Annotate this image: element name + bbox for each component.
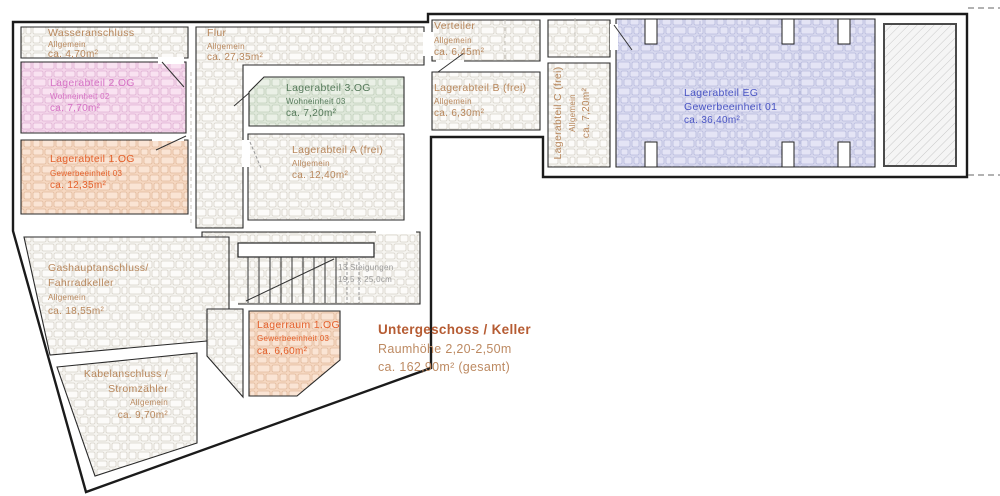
room-name: Flur <box>207 27 226 39</box>
room-name2: Stromzähler <box>108 383 168 395</box>
room-lagerabteil-1og: Lagerabteil 1.OG Gewerbeeinheit 03 ca. 1… <box>21 134 188 214</box>
room-area: ca. 7,20m² <box>581 88 592 139</box>
room-unit: Allgemein <box>48 293 86 302</box>
shaft-hatched-area <box>884 24 956 166</box>
room-name: Gashauptanschluss/ <box>48 262 149 274</box>
room-unit: Allgemein <box>48 40 86 49</box>
room-name: Lagerabteil 1.OG <box>50 153 135 165</box>
room-unit: Allgemein <box>434 36 472 45</box>
title-block: Untergeschoss / Keller Raumhöhe 2,20-2,5… <box>378 322 531 374</box>
room-unit: Allgemein <box>207 42 245 51</box>
stair-hall: 13 Steigungen 19,5 x 25,0cm <box>202 227 420 310</box>
floor-plan-drawing: Wasseranschluss Allgemein ca. 4,70m² Lag… <box>0 0 1000 496</box>
room-area: ca. 6,60m² <box>257 346 308 357</box>
wall-masonry-patch <box>548 20 610 57</box>
room-area: ca. 18,55m² <box>48 306 104 317</box>
room-gashauptanschluss: Gashauptanschluss/ Fahrradkeller Allgeme… <box>24 237 229 355</box>
room-area: ca. 6,30m² <box>434 108 485 119</box>
room-name: Kabelanschluss / <box>84 368 168 380</box>
room-wasseranschluss: Wasseranschluss Allgemein ca. 4,70m² <box>21 27 188 60</box>
room-area: ca. 36,40m² <box>684 115 740 126</box>
room-name: Lagerabteil EG <box>684 87 758 99</box>
room-area: ca. 4,70m² <box>48 49 99 60</box>
room-lagerabteil-a: Lagerabteil A (frei) Allgemein ca. 12,40… <box>242 134 404 220</box>
room-name: Wasseranschluss <box>48 27 134 39</box>
room-name: Lagerabteil 2.OG <box>50 77 135 89</box>
room-area: ca. 9,70m² <box>118 410 169 421</box>
plan-title: Untergeschoss / Keller <box>378 322 531 337</box>
room-unit: Allgemein <box>434 97 472 106</box>
room-name: Lagerabteil 3.OG <box>286 82 371 94</box>
room-unit: Allgemein <box>292 159 330 168</box>
stair-dimensions-label: 19,5 x 25,0cm <box>338 275 392 284</box>
stair-risers-label: 13 Steigungen <box>338 263 394 272</box>
room-unit: Wohneinheit 02 <box>50 92 110 101</box>
room-name: Lagerabteil A (frei) <box>292 144 383 156</box>
room-area: ca. 7,20m² <box>286 108 337 119</box>
room-unit: Gewerbeeinheit 03 <box>50 169 123 178</box>
room-lagerabteil-eg: Lagerabteil EG Gewerbeeinheit 01 ca. 36,… <box>610 19 875 167</box>
plan-total-area: ca. 162,90m² (gesamt) <box>378 360 510 374</box>
room-unit: Allgemein <box>130 398 168 407</box>
room-unit: Allgemein <box>568 94 577 132</box>
room-area: ca. 7,70m² <box>50 103 101 114</box>
floor-plan-page: Wasseranschluss Allgemein ca. 4,70m² Lag… <box>0 0 1000 496</box>
room-lagerabteil-c: Lagerabteil C (frei) Allgemein ca. 7,20m… <box>548 63 610 167</box>
room-area: ca. 12,40m² <box>292 170 348 181</box>
room-lagerabteil-3og: Lagerabteil 3.OG Wohneinheit 03 ca. 7,20… <box>234 77 404 126</box>
room-lagerabteil-2og: Lagerabteil 2.OG Wohneinheit 02 ca. 7,70… <box>21 57 186 133</box>
room-name: Lagerraum 1.OG <box>257 319 340 331</box>
room-unit: Wohneinheit 03 <box>286 97 346 106</box>
room-name: Lagerabteil C (frei) <box>552 67 564 160</box>
room-name2: Fahrradkeller <box>48 277 114 289</box>
room-unit: Gewerbeeinheit 03 <box>257 334 330 343</box>
room-area: ca. 27,35m² <box>207 52 263 63</box>
plan-room-height: Raumhöhe 2,20-2,50m <box>378 342 512 356</box>
room-area: ca. 12,35m² <box>50 180 106 191</box>
room-name: Verteiler <box>434 20 475 32</box>
room-unit: Gewerbeeinheit 01 <box>684 101 777 113</box>
room-name: Lagerabteil B (frei) <box>434 82 526 94</box>
room-area: ca. 6,45m² <box>434 47 485 58</box>
room-lagerabteil-b: Lagerabteil B (frei) Allgemein ca. 6,30m… <box>432 72 540 130</box>
stair-landing-wall <box>238 243 374 257</box>
